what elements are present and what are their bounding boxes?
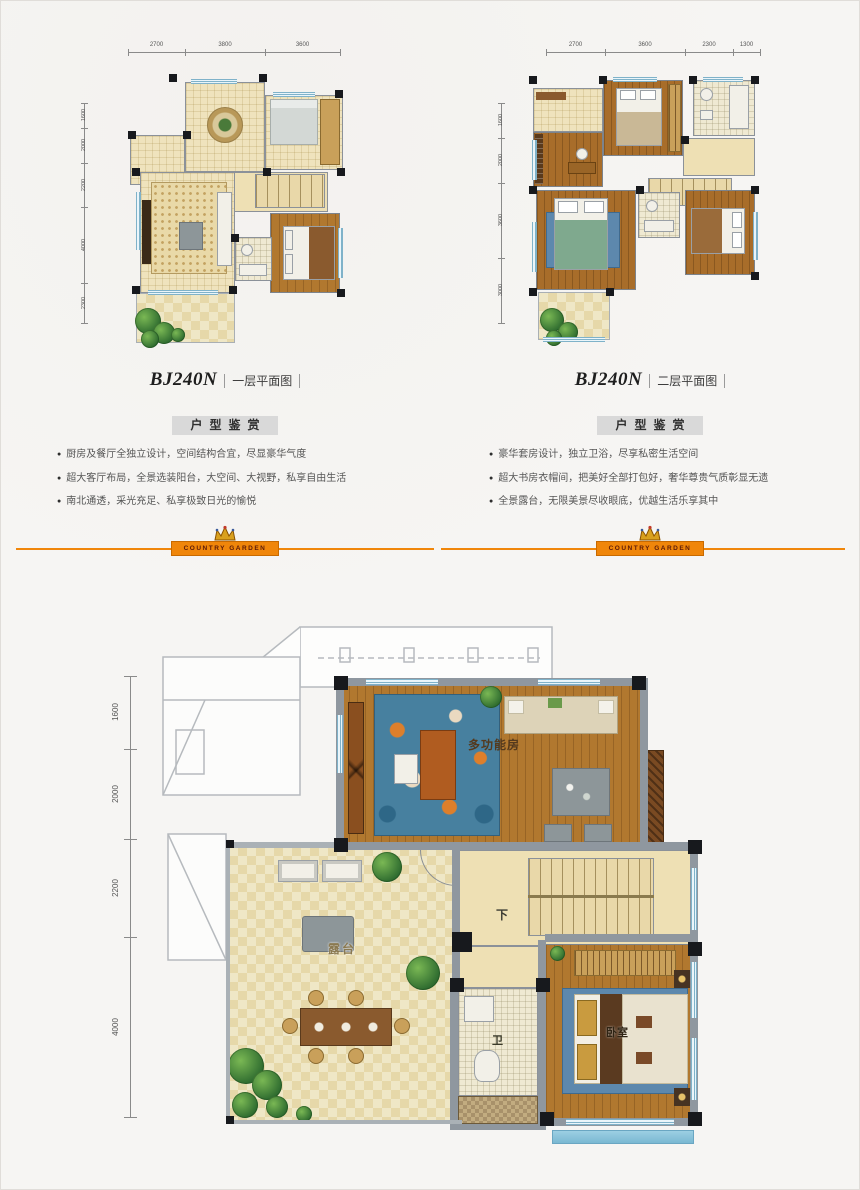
master-duvet <box>555 220 607 269</box>
dim-label: 1600 <box>497 107 505 133</box>
dining-chair <box>308 1048 324 1064</box>
window <box>532 140 537 180</box>
dim-label: 4000 <box>112 1007 120 1047</box>
stairs-first <box>255 174 325 208</box>
wall-block <box>334 676 348 690</box>
dim-label: 1600 <box>112 692 120 732</box>
dim-tick <box>546 49 547 56</box>
toilet <box>700 88 713 101</box>
window <box>338 228 343 278</box>
wall-block <box>689 76 697 84</box>
dim-tick <box>265 49 266 56</box>
wall-light <box>226 846 230 1124</box>
ac-louver <box>646 750 664 846</box>
wall-block <box>226 1116 234 1124</box>
window <box>613 77 657 82</box>
dim-tick <box>81 323 88 324</box>
dim-tick <box>498 138 505 139</box>
bed-duvet <box>617 112 661 145</box>
dim-tick <box>124 676 137 677</box>
bed-pillow <box>732 232 742 248</box>
dining-chair <box>394 1018 410 1034</box>
dining-table <box>300 1008 392 1046</box>
dim-line-top <box>546 52 760 53</box>
dim-tick <box>733 49 734 56</box>
wall-block <box>751 186 759 194</box>
side-cabinet <box>348 702 364 834</box>
bullet: 南北通透，采光充足、私享极致日光的愉悦 <box>57 496 393 509</box>
wall-block <box>540 1112 554 1126</box>
plant <box>480 686 502 708</box>
bathtub <box>644 220 674 232</box>
window <box>753 212 758 260</box>
wall-block <box>226 840 234 848</box>
window <box>703 77 743 82</box>
window <box>136 192 141 250</box>
dim-label: 2200 <box>80 172 88 198</box>
dining-chair <box>348 990 364 1006</box>
floor-plan-second: 2700 3600 2300 1300 1600 2000 3600 3000 <box>488 40 803 375</box>
dim-line-top <box>128 52 340 53</box>
toilet <box>646 200 658 212</box>
crown-icon <box>637 525 663 542</box>
title-second-floor: BJ240N二层平面图 <box>530 369 770 391</box>
dim-label: 2000 <box>112 774 120 814</box>
wall <box>545 934 697 942</box>
bed-pillow <box>584 201 604 213</box>
dim-label: 1300 <box>733 41 760 49</box>
bed-duvet <box>692 209 722 253</box>
sofa-pillow <box>508 700 524 714</box>
desk-chair <box>576 148 588 160</box>
floor-caption: 二层平面图 <box>649 374 725 388</box>
window <box>148 290 218 295</box>
dim-label: 4000 <box>80 232 88 258</box>
crown-icon <box>212 525 238 542</box>
floor-plan-third: 多功能房 下 露台 卫 卧室 1600 2000 2200 4000 <box>0 600 860 1190</box>
wall-block <box>132 168 140 176</box>
bullet-list-left: 厨房及餐厅全独立设计，空间结构合宜，尽显豪华气度 超大客厅布局，全景选装阳台，大… <box>57 449 393 520</box>
label-bath: 卫 <box>492 1032 503 1048</box>
wall-block <box>229 286 237 294</box>
dim-tick <box>81 283 88 284</box>
wall <box>640 678 648 850</box>
dim-label: 3600 <box>497 207 505 233</box>
bullet: 超大书房衣帽间，把美好全部打包好，奢华尊贵气质彰显无遗 <box>489 473 825 486</box>
tv-cabinet <box>142 200 151 264</box>
bullet-list-right: 豪华套房设计，独立卫浴，尽享私密生活空间 超大书房衣帽间，把美好全部打包好，奢华… <box>489 449 825 520</box>
dim-tick <box>124 839 137 840</box>
bed-pillow <box>640 90 656 100</box>
dim-tick <box>498 183 505 184</box>
dim-label: 2700 <box>128 41 185 49</box>
wall-block <box>536 978 550 992</box>
wall-block <box>169 74 177 82</box>
bed-pillow <box>577 1044 597 1080</box>
window <box>337 715 343 773</box>
bed-pillow <box>285 254 293 274</box>
sofa-pillow <box>598 700 614 714</box>
wall-light <box>226 842 338 848</box>
wardrobe <box>574 950 676 976</box>
dim-label: 1600 <box>80 102 88 128</box>
sink <box>700 110 713 120</box>
plant <box>266 1096 288 1118</box>
wall <box>452 846 460 989</box>
corridor <box>458 946 542 988</box>
reflecting-pool <box>552 1130 694 1144</box>
dim-label: 2300 <box>685 41 733 49</box>
room-study <box>533 132 603 187</box>
appreciation-badge-right: 户型鉴赏 <box>597 416 703 435</box>
bullet: 全景露台，无限美景尽收眼底，优越生活乐享其中 <box>489 496 825 509</box>
wall-block <box>529 76 537 84</box>
model-code: BJ240N <box>150 369 217 390</box>
wall-block <box>632 676 646 690</box>
dining-chair <box>282 1018 298 1034</box>
plant <box>141 330 159 348</box>
desk <box>568 162 596 174</box>
label-multi-function: 多功能房 <box>468 736 520 753</box>
wall-block <box>337 168 345 176</box>
window <box>691 962 697 1018</box>
wall <box>336 842 698 850</box>
laundry-tile <box>458 1096 538 1124</box>
dining-chair <box>348 1048 364 1064</box>
room-hall2 <box>683 138 755 176</box>
dim-label: 2700 <box>546 41 605 49</box>
wall-block <box>751 272 759 280</box>
wall-block <box>751 76 759 84</box>
toilet <box>241 244 253 256</box>
floor-plan-first: 2700 3800 3600 1600 2000 2200 4000 2300 <box>73 40 383 375</box>
stairs-rail <box>528 895 654 898</box>
dim-tick <box>498 103 505 104</box>
wall-block <box>529 288 537 296</box>
bed-pillow <box>620 90 636 100</box>
dim-tick <box>81 128 88 129</box>
dim-label: 3000 <box>497 277 505 303</box>
bed-cushion <box>636 1016 652 1028</box>
wall-block <box>688 1112 702 1126</box>
plant <box>232 1092 258 1118</box>
dim-label: 2000 <box>497 147 505 173</box>
lounge-chair <box>278 860 318 882</box>
desk-chair <box>394 754 418 784</box>
ottoman <box>544 824 572 842</box>
suite-bed <box>270 99 318 145</box>
model-code: BJ240N <box>575 369 642 390</box>
window <box>273 92 315 97</box>
desk <box>420 730 456 800</box>
bed-pillow <box>732 212 742 228</box>
wall-block <box>337 289 345 297</box>
dim-label: 3600 <box>605 41 685 49</box>
wall-block <box>132 286 140 294</box>
dim-line-left <box>130 676 131 1117</box>
wall-block <box>334 838 348 852</box>
label-terrace: 露台 <box>328 940 356 957</box>
dim-tick <box>760 49 761 56</box>
wall-block <box>599 76 607 84</box>
wall <box>450 1124 546 1130</box>
plant <box>171 328 185 342</box>
palm-plant <box>406 956 440 990</box>
dim-label: 2200 <box>112 868 120 908</box>
dim-label: 3600 <box>265 41 340 49</box>
wall-block <box>452 932 472 952</box>
dining-table <box>207 107 243 143</box>
dim-tick <box>498 258 505 259</box>
dim-tick <box>185 49 186 56</box>
label-bedroom: 卧室 <box>606 1024 628 1040</box>
dim-tick <box>605 49 606 56</box>
wall-block <box>128 131 136 139</box>
wall-block <box>681 136 689 144</box>
bullet: 超大客厅布局，全景选装阳台，大空间、大视野，私享自由生活 <box>57 473 393 486</box>
window <box>538 679 600 685</box>
appreciation-badge-left: 户型鉴赏 <box>172 416 278 435</box>
brand-badge-left: COUNTRY GARDEN <box>171 541 279 556</box>
window <box>532 222 537 272</box>
dim-tick <box>124 749 137 750</box>
brand-badge-right: COUNTRY GARDEN <box>596 541 704 556</box>
lounge-chair <box>322 860 362 882</box>
entry-counter <box>536 92 566 100</box>
bathtub <box>239 264 267 276</box>
dim-tick <box>81 163 88 164</box>
toilet <box>474 1050 500 1082</box>
wall-block <box>529 186 537 194</box>
wall-block <box>688 840 702 854</box>
suite-wardrobe <box>320 99 340 165</box>
wall <box>450 985 458 1130</box>
dim-tick <box>124 937 137 938</box>
window <box>691 1038 697 1100</box>
dining-chair <box>308 990 324 1006</box>
dim-label: 2000 <box>80 132 88 158</box>
window <box>543 337 605 342</box>
window <box>191 79 237 84</box>
sofa-first <box>217 192 232 266</box>
page: 2700 3800 3600 1600 2000 2200 4000 2300 <box>0 0 860 1190</box>
dim-tick <box>128 49 129 56</box>
window <box>691 868 697 930</box>
dim-tick <box>498 323 505 324</box>
wall-block <box>263 168 271 176</box>
floor-caption: 一层平面图 <box>224 374 300 388</box>
wall-block <box>450 978 464 992</box>
window <box>366 679 438 685</box>
bathtub <box>729 85 749 129</box>
wardrobe-top <box>668 84 681 152</box>
dim-tick <box>685 49 686 56</box>
bed-pillow <box>285 230 293 250</box>
dim-tick <box>124 1117 137 1118</box>
wall-block <box>335 90 343 98</box>
nightstand <box>674 970 690 988</box>
bed-pillow <box>577 1000 597 1036</box>
dim-label: 2300 <box>80 290 88 316</box>
ottoman <box>584 824 612 842</box>
wall-light <box>226 1120 462 1124</box>
window <box>566 1119 674 1125</box>
bullet: 豪华套房设计，独立卫浴，尽享私密生活空间 <box>489 449 825 462</box>
dim-tick <box>340 49 341 56</box>
wall <box>538 940 546 1126</box>
label-stairs-down: 下 <box>496 906 508 923</box>
bed-pillow <box>558 201 578 213</box>
coffee-table <box>552 768 610 816</box>
vanity <box>464 996 494 1022</box>
palm-plant <box>372 852 402 882</box>
wall-block <box>606 288 614 296</box>
dim-tick <box>81 207 88 208</box>
wall-block <box>259 74 267 82</box>
title-first-floor: BJ240N一层平面图 <box>105 369 345 391</box>
wall-block <box>636 186 644 194</box>
wall-block <box>183 131 191 139</box>
coffee-table-first <box>179 222 203 250</box>
plant <box>550 946 565 961</box>
dim-label: 3800 <box>185 41 265 49</box>
wall-block <box>688 942 702 956</box>
nightstand <box>674 1088 690 1106</box>
sofa-pillow <box>548 698 562 708</box>
wall-block <box>231 234 239 242</box>
bed-duvet <box>309 227 334 279</box>
bullet: 厨房及餐厅全独立设计，空间结构合宜，尽显豪华气度 <box>57 449 393 462</box>
bed-cushion <box>636 1052 652 1064</box>
bed-duvet <box>622 994 688 1084</box>
